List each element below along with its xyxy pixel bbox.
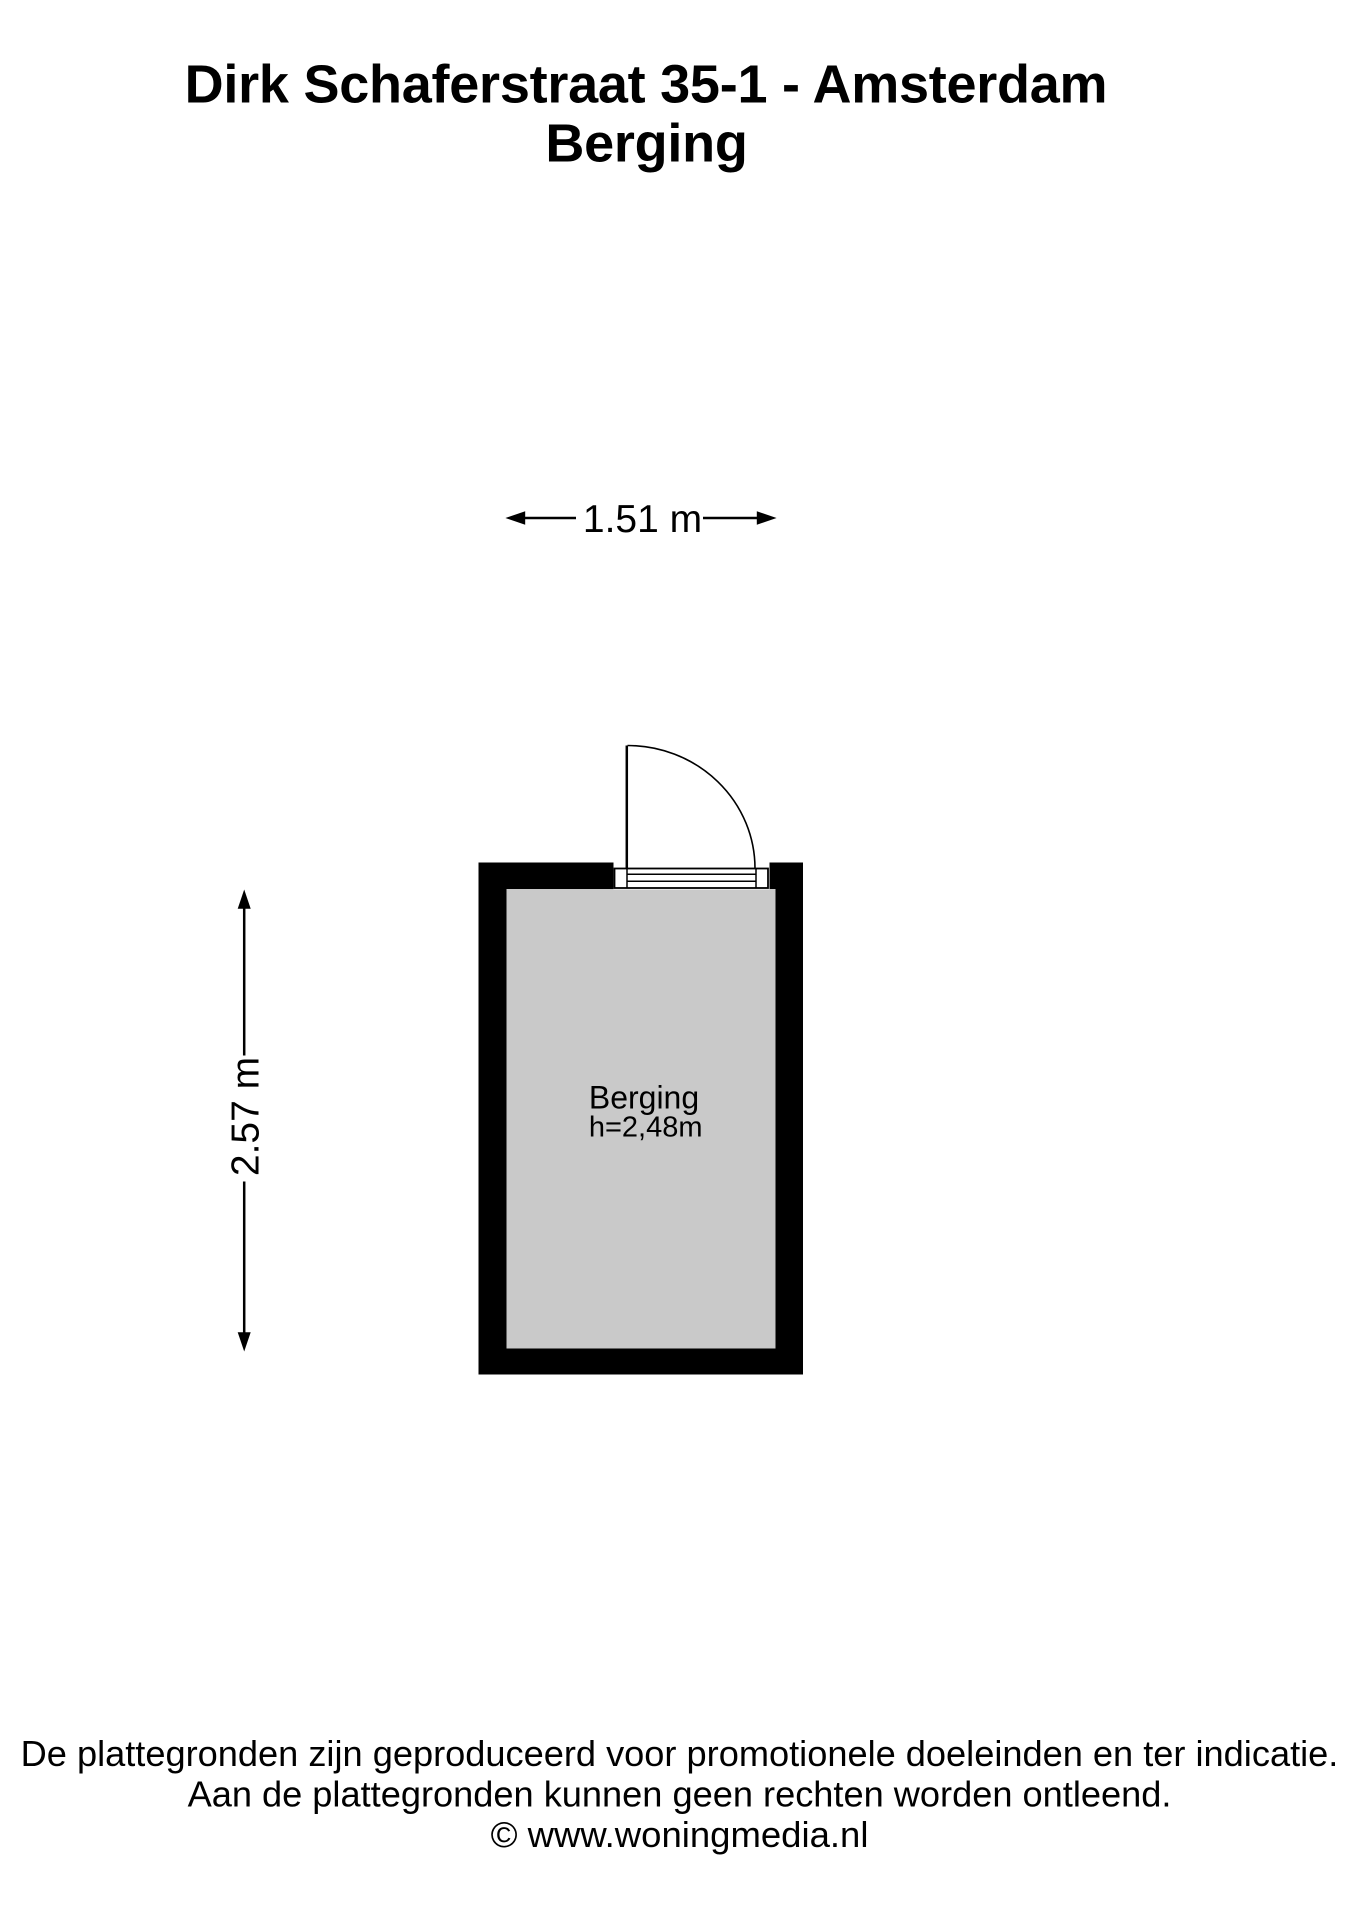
svg-text:h=2,48m: h=2,48m xyxy=(589,1112,703,1144)
svg-text:Berging: Berging xyxy=(589,1079,699,1115)
svg-text:1.51 m: 1.51 m xyxy=(583,498,702,541)
svg-text:2.57 m: 2.57 m xyxy=(225,1057,268,1176)
svg-text:Aan de plattegronden kunnen ge: Aan de plattegronden kunnen geen rechten… xyxy=(188,1774,1172,1815)
svg-text:Berging: Berging xyxy=(545,114,747,174)
svg-text:© www.woningmedia.nl: © www.woningmedia.nl xyxy=(491,1814,869,1855)
svg-text:Dirk Schaferstraat 35-1 - Amst: Dirk Schaferstraat 35-1 - Amsterdam xyxy=(185,55,1108,115)
svg-text:De plattegronden zijn geproduc: De plattegronden zijn geproduceerd voor … xyxy=(21,1733,1339,1774)
